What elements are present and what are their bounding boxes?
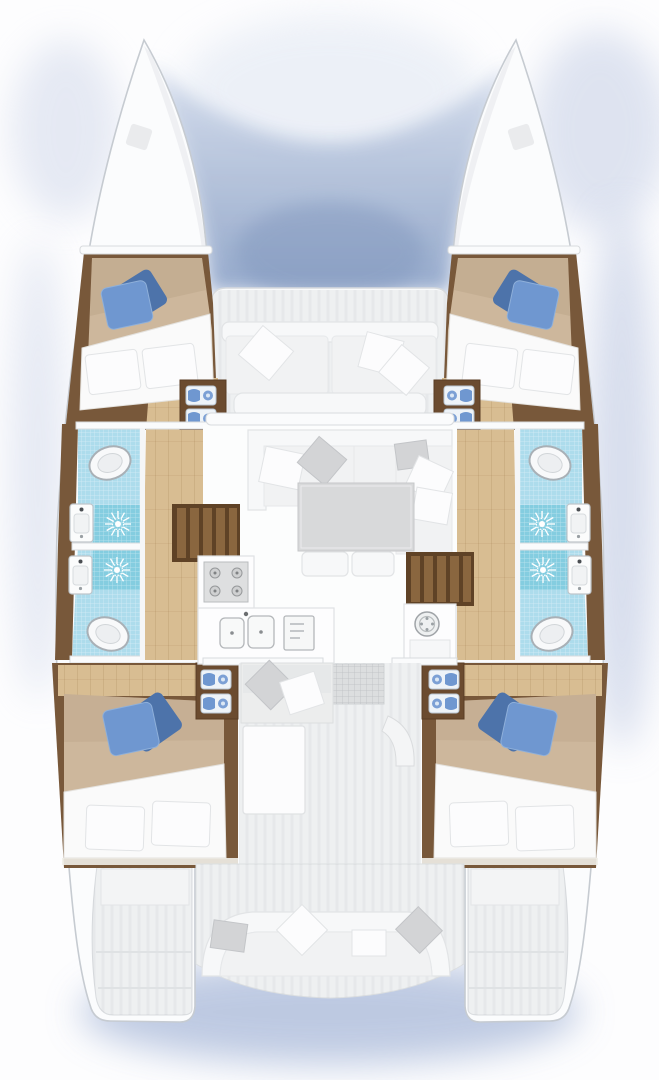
gray-pillow xyxy=(210,920,248,952)
white-pillow xyxy=(352,930,386,956)
doormat xyxy=(330,664,384,704)
catamaran-floor-plan xyxy=(0,0,659,1080)
washing-machine-icon xyxy=(404,604,456,664)
aft-cockpit-bench xyxy=(202,905,450,976)
forward-cockpit xyxy=(212,290,448,425)
staircase-starboard xyxy=(406,552,474,606)
oven-icon xyxy=(284,616,314,650)
staircase-port xyxy=(172,504,240,562)
white-pillow xyxy=(411,487,452,525)
saloon xyxy=(172,413,474,665)
stool xyxy=(302,552,348,576)
stool xyxy=(352,552,394,576)
cockpit-side-bench xyxy=(241,660,333,723)
cockpit-bench-seat xyxy=(243,726,305,814)
saloon-table xyxy=(298,483,414,551)
stove-icon xyxy=(204,562,248,602)
saloon-front-wall xyxy=(206,413,454,425)
